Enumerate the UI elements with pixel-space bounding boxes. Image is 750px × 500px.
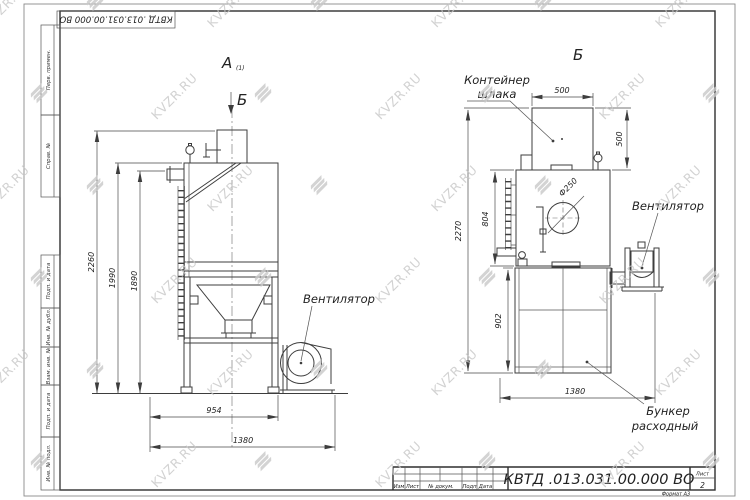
dim-dia-250: Ф250 xyxy=(557,176,579,198)
tb-col-list: Лист xyxy=(405,484,420,490)
dim-1380-b: 1380 xyxy=(565,387,585,396)
dimensions-b: Б Контейнер шлака Ф250 500 500 2270 804 … xyxy=(454,46,704,433)
dim-2270: 2270 xyxy=(454,221,463,241)
view-direction-arrow xyxy=(228,105,234,114)
view-a-label-sub: (1) xyxy=(236,65,245,72)
hopper-label-1: Бункер xyxy=(646,404,690,418)
side-stamp: Перв. примен. Справ. № Подп. и дата Инв.… xyxy=(41,25,60,490)
fan-label-a: Вентилятор xyxy=(303,292,375,306)
stamp-field: Подп. и дата xyxy=(46,263,52,300)
stamp-field: Инв. № подл. xyxy=(46,444,52,481)
stamp-field: Инв. № дубл. xyxy=(46,309,52,346)
dim-500-top: 500 xyxy=(554,86,569,95)
view-b xyxy=(497,108,664,373)
dim-954: 954 xyxy=(206,406,221,415)
title-block: Изм Лист № докум. Подп Дата КВТД .013.03… xyxy=(393,467,715,498)
stamp-field: Справ. № xyxy=(46,142,52,169)
dim-500-right: 500 xyxy=(615,131,624,146)
sheet-frame xyxy=(24,4,735,496)
view-b-label: Б xyxy=(573,46,583,64)
tb-col-docnum: № докум. xyxy=(427,484,454,490)
slag-container-label-1: Контейнер xyxy=(464,73,530,87)
top-stamp: КВТД .013.031.00.000 ВО xyxy=(57,11,175,28)
hopper-label-2: расходный xyxy=(631,419,699,433)
dim-2260: 2260 xyxy=(87,252,96,272)
tb-col-podp: Подп xyxy=(462,484,477,490)
dim-1990: 1990 xyxy=(108,268,117,288)
sheet-label: Лист xyxy=(695,472,710,478)
drawing-sheet: Перв. примен. Справ. № Подп. и дата Инв.… xyxy=(0,0,750,500)
document-number: КВТД .013.031.00.000 ВО xyxy=(504,472,695,488)
slag-container-label-2: шлака xyxy=(478,87,517,101)
section-mark-b: Б xyxy=(237,91,247,109)
stamp-field: Подп. и дата xyxy=(46,393,52,430)
top-stamp-number: КВТД .013.031.00.000 ВО xyxy=(59,14,172,24)
engineering-drawing: Перв. примен. Справ. № Подп. и дата Инв.… xyxy=(0,0,750,500)
dim-902: 902 xyxy=(494,313,503,328)
dim-804: 804 xyxy=(481,211,490,226)
fan-label-b: Вентилятор xyxy=(632,199,704,213)
tb-col-izm: Изм xyxy=(394,484,405,490)
dim-1890: 1890 xyxy=(130,271,139,291)
tb-col-data: Дата xyxy=(478,484,492,490)
stamp-field: Взам. инв. № xyxy=(46,347,52,384)
dim-1380-a: 1380 xyxy=(233,436,253,445)
view-a-label: А xyxy=(221,54,232,72)
format-note: Формат А3 xyxy=(662,492,690,498)
sheet-number: 2 xyxy=(700,481,705,490)
stamp-field: Перв. примен. xyxy=(46,50,52,90)
